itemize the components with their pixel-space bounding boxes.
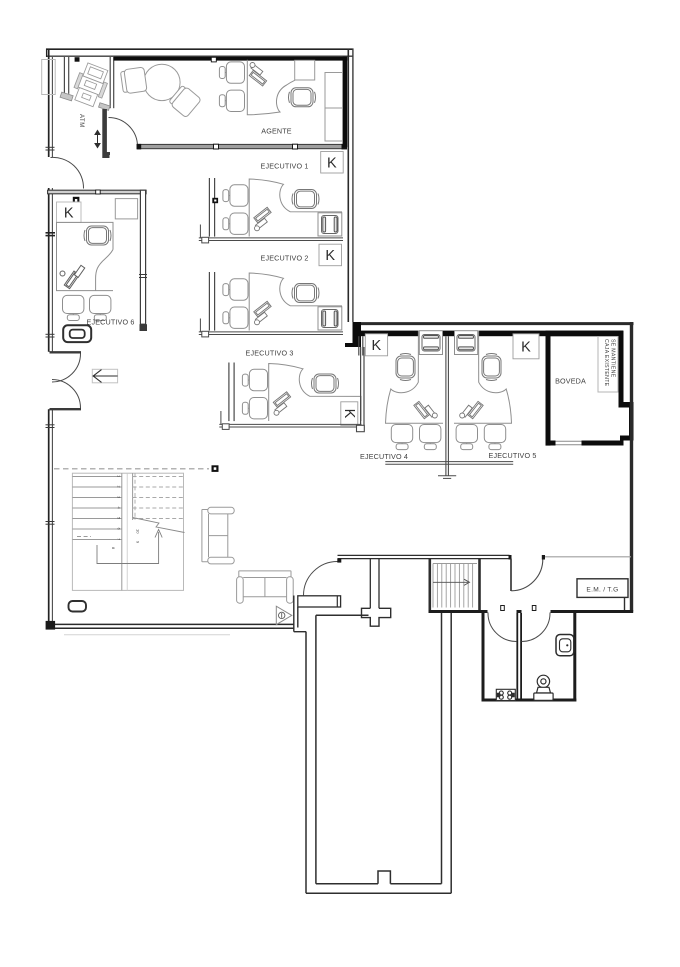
svg-text:K: K xyxy=(521,340,531,356)
svg-text:EJECUTIVO 5: EJECUTIVO 5 xyxy=(489,451,537,460)
svg-text:AGENTE: AGENTE xyxy=(261,127,292,136)
svg-text:K: K xyxy=(64,206,74,222)
svg-text:SE MANTIENE: SE MANTIENE xyxy=(610,339,616,378)
svg-text:ATM: ATM xyxy=(78,114,84,128)
svg-text:EJECUTIVO 2: EJECUTIVO 2 xyxy=(261,254,309,263)
svg-text:K: K xyxy=(327,156,337,172)
svg-text:BOVEDA: BOVEDA xyxy=(555,377,586,386)
svg-text:K: K xyxy=(372,338,382,354)
svg-text:E.M. / T.G: E.M. / T.G xyxy=(586,586,618,593)
svg-text:EJECUTIVO 1: EJECUTIVO 1 xyxy=(261,162,309,171)
svg-text:EJECUTIVO 4: EJECUTIVO 4 xyxy=(360,452,408,461)
svg-text:K: K xyxy=(341,409,357,419)
svg-text:EJECUTIVO 6: EJECUTIVO 6 xyxy=(87,318,135,327)
svg-text:CAJA EXISTENTE: CAJA EXISTENTE xyxy=(603,339,609,387)
svg-text:K: K xyxy=(325,248,335,264)
svg-text:EJECUTIVO 3: EJECUTIVO 3 xyxy=(246,349,294,358)
svg-text:10: 10 xyxy=(136,529,141,534)
